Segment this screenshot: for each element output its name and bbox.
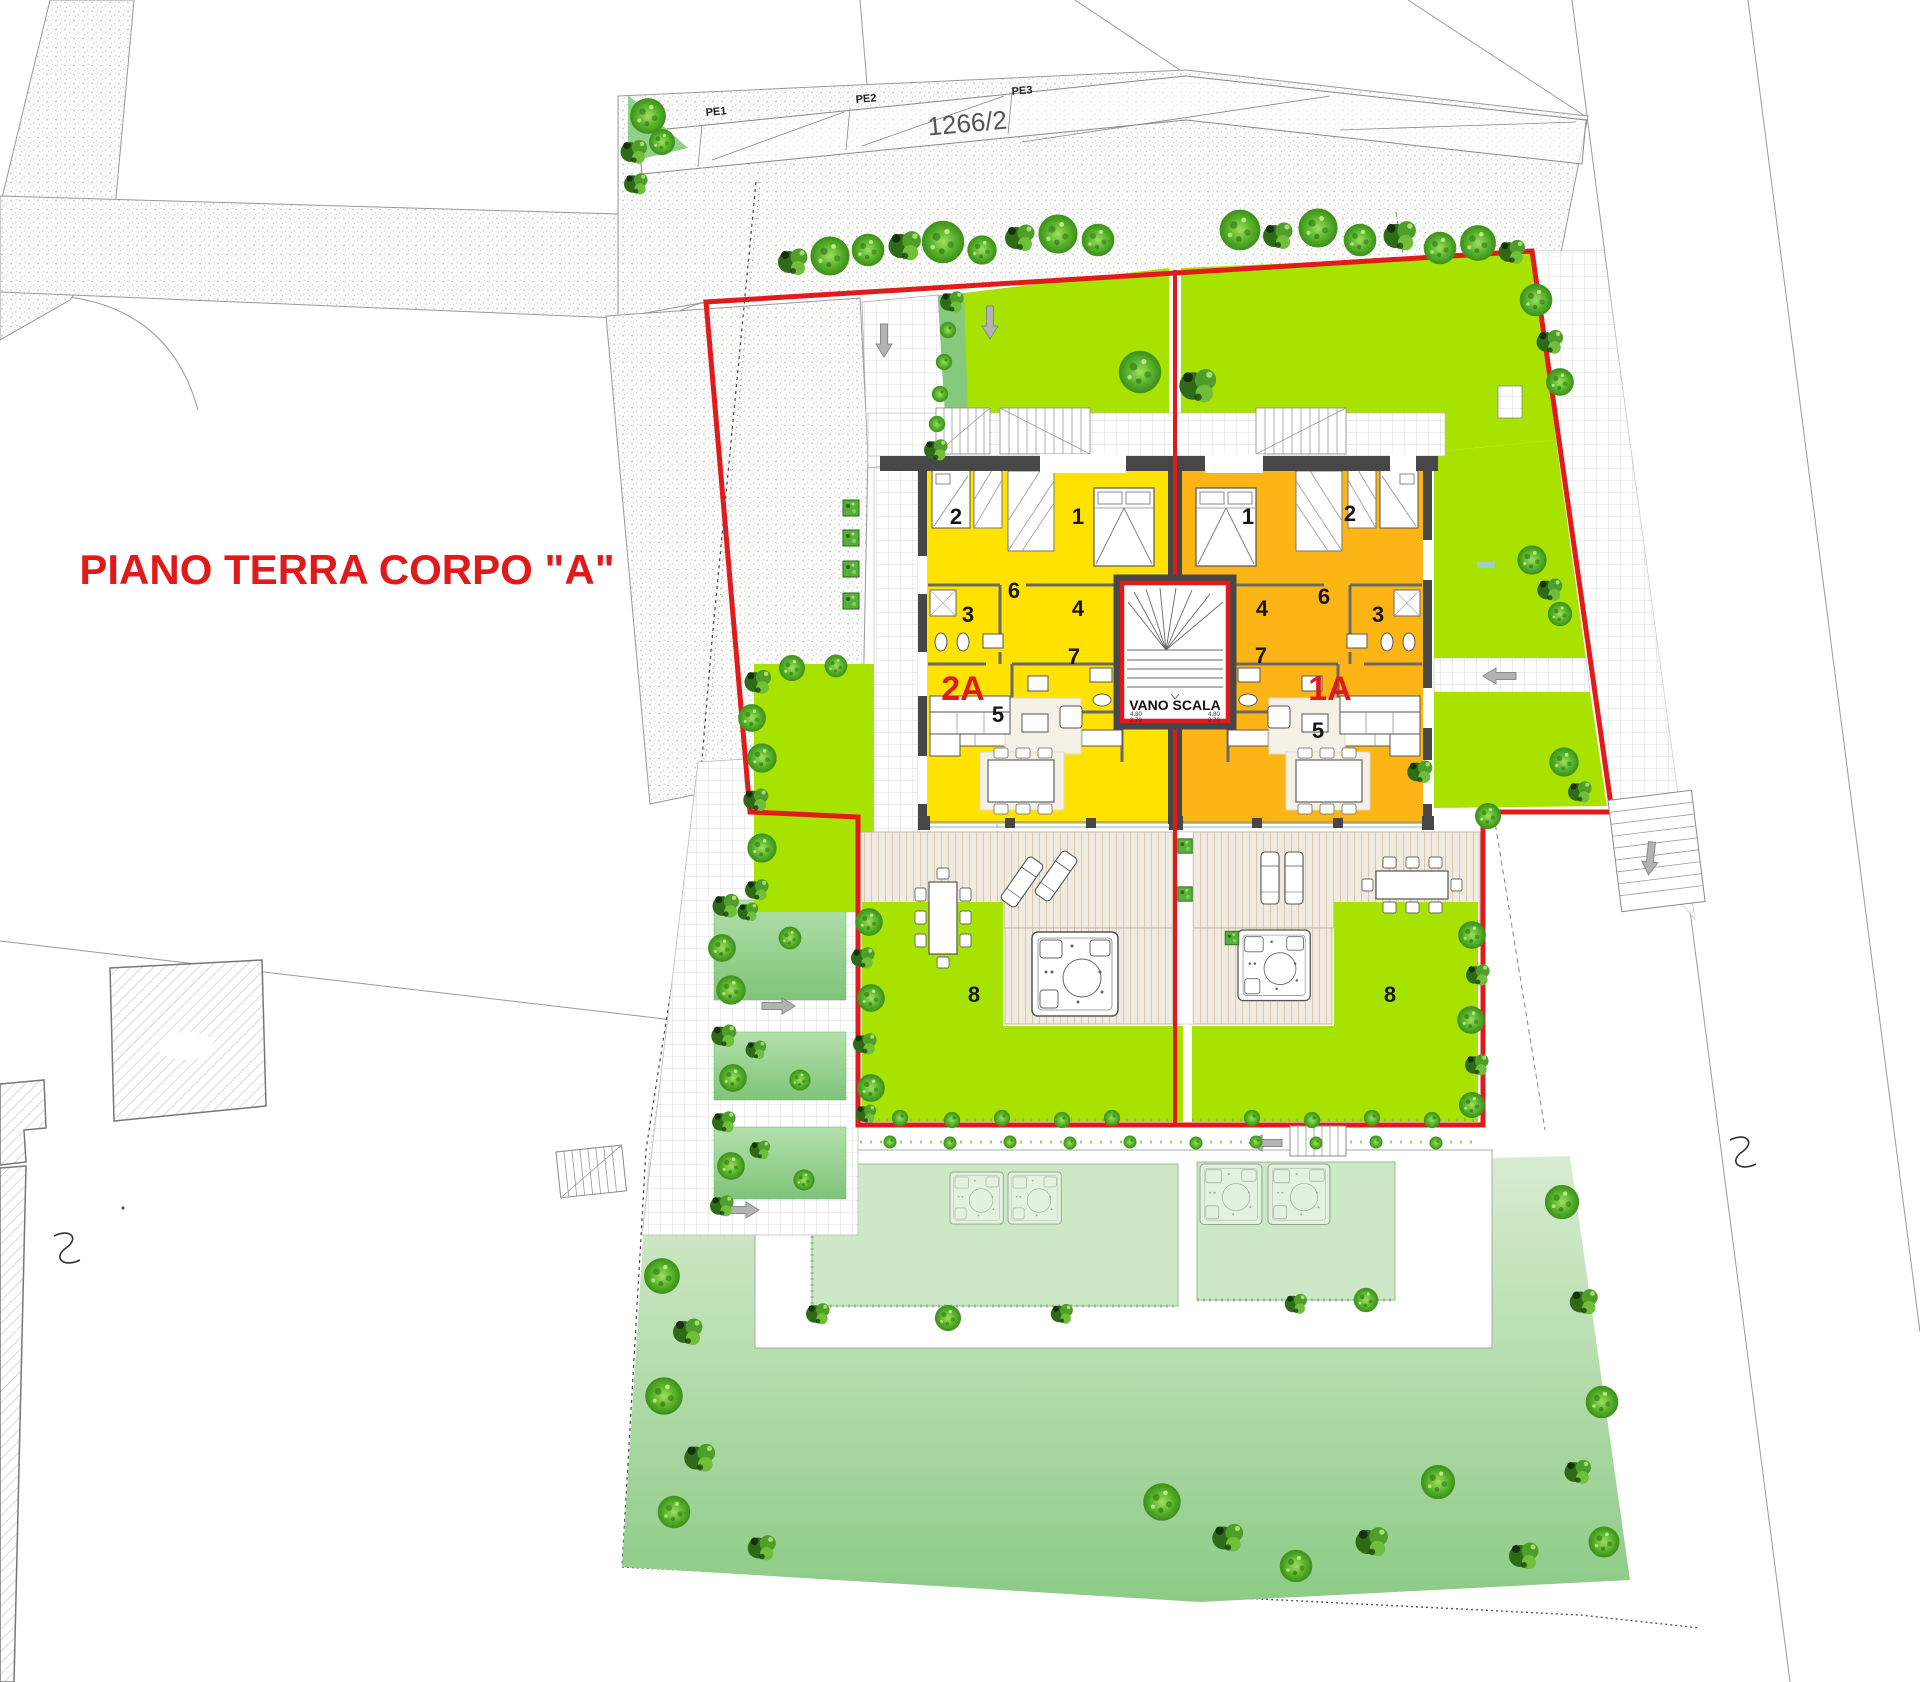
room-label-2a-5: 5 xyxy=(992,702,1004,727)
room-label-2a-1: 1 xyxy=(1072,504,1084,529)
jacuzzi-right xyxy=(1238,930,1310,1001)
room-label-2a-7: 7 xyxy=(1068,644,1080,669)
exterior-stairs-east xyxy=(1608,790,1705,911)
stairwell-label: VANO SCALA xyxy=(1129,697,1221,713)
pe2-label: PE2 xyxy=(855,92,877,106)
garden-label-1a-8: 8 xyxy=(1384,982,1396,1007)
jacuzzi-left xyxy=(1032,932,1118,1016)
room-label-1a-5: 5 xyxy=(1312,718,1324,743)
stairwell: VANO SCALA 4.80 2.70 4.80 2.70 xyxy=(1117,578,1233,726)
floor-plan-page: PE1 PE2 PE3 1266/2 xyxy=(0,0,1920,1682)
room-label-2a-6: 6 xyxy=(1008,578,1020,603)
stairwell-dim: 2.70 xyxy=(1208,718,1220,724)
garden-label-2a-8: 8 xyxy=(968,982,980,1007)
exterior-stairs-southwest xyxy=(556,1145,626,1198)
deck-center-strip xyxy=(1177,832,1193,1024)
pe3-label: PE3 xyxy=(1011,84,1033,98)
room-label-1a-7: 7 xyxy=(1255,643,1267,668)
room-label-2a-4: 4 xyxy=(1072,596,1085,621)
survey-dot xyxy=(121,1206,124,1209)
road-horizontal xyxy=(0,196,618,318)
stairwell-dim: 2.70 xyxy=(1130,718,1142,724)
room-label-1a-2: 2 xyxy=(1344,501,1356,526)
pergola-grid xyxy=(1498,386,1522,418)
room-label-1a-6: 6 xyxy=(1318,584,1330,609)
room-label-1a-4: 4 xyxy=(1256,596,1269,621)
room-label-2a-2: 2 xyxy=(950,504,962,529)
room-label-2a-3: 3 xyxy=(962,602,974,627)
pe1-label: PE1 xyxy=(705,105,727,119)
sun-lounger xyxy=(1285,852,1303,904)
section-marker-s-left xyxy=(54,1233,80,1263)
unit-code-1a: 1A xyxy=(1308,670,1351,708)
section-marker-s-right xyxy=(1730,1137,1756,1167)
page-title: PIANO TERRA CORPO "A" xyxy=(79,546,614,593)
unit-code-2a: 2A xyxy=(941,670,984,708)
room-label-1a-3: 3 xyxy=(1372,602,1384,627)
site-plan-svg: PE1 PE2 PE3 1266/2 xyxy=(0,0,1920,1682)
room-label-1a-1: 1 xyxy=(1242,504,1254,529)
existing-buildings xyxy=(0,960,266,1682)
sun-lounger xyxy=(1261,852,1279,904)
bench-teal xyxy=(1477,562,1495,568)
